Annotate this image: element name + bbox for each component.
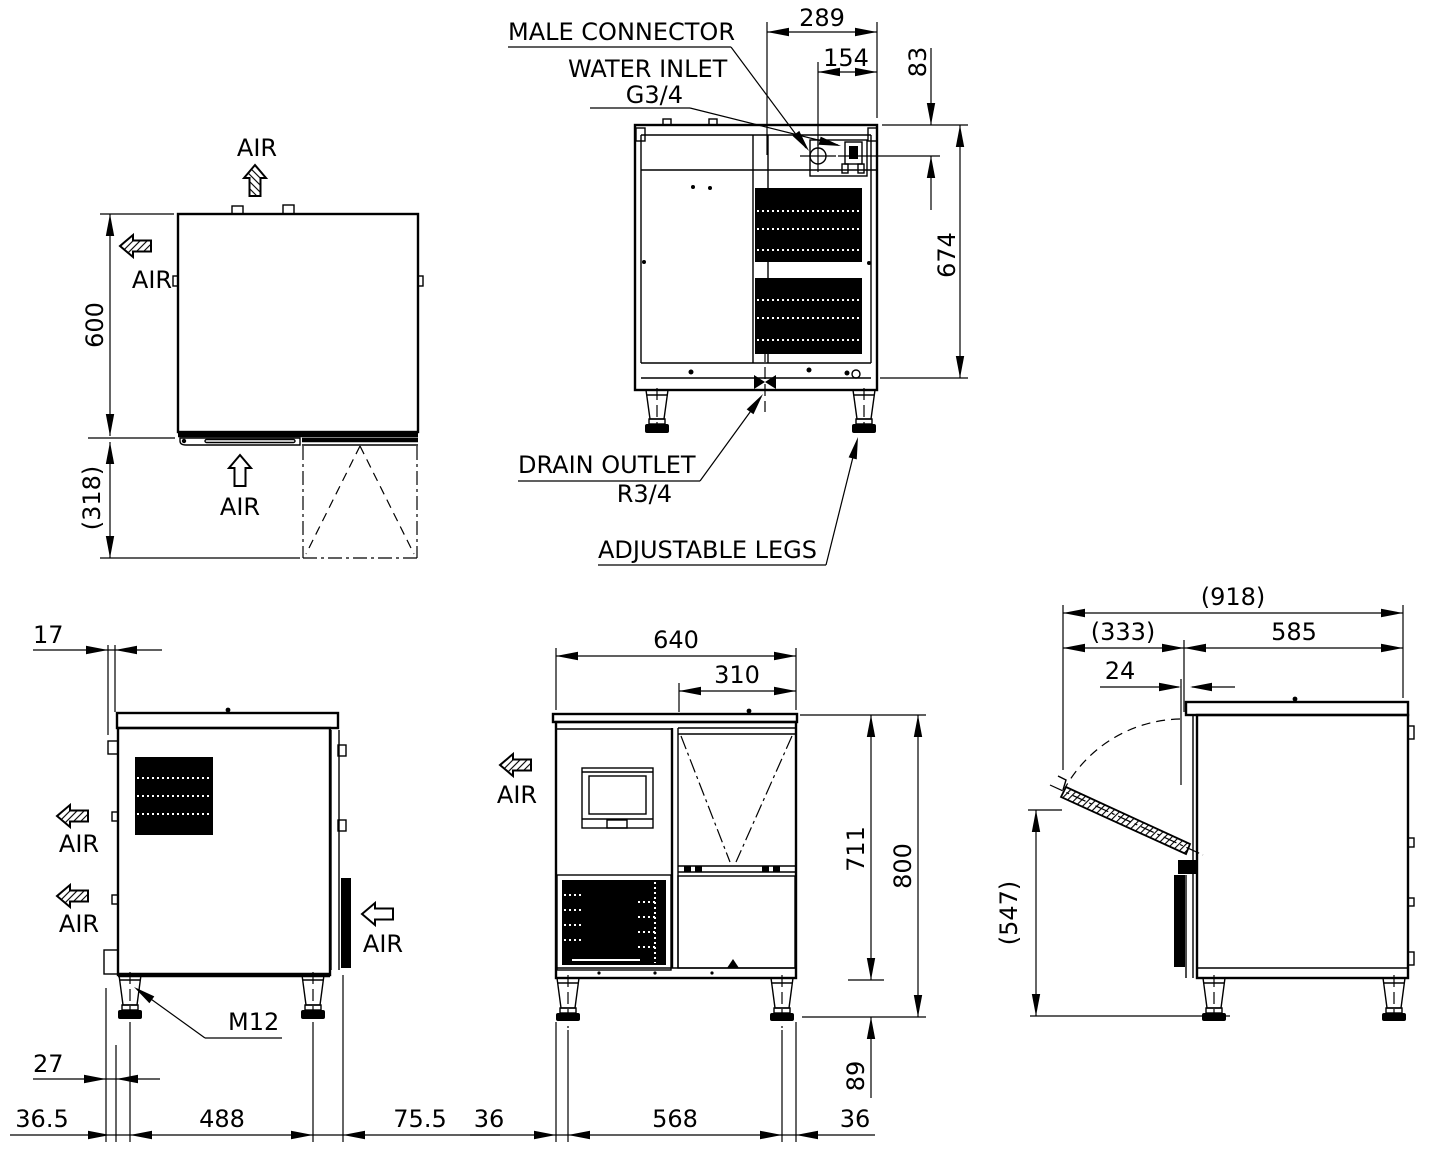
dimension-318: (318): [78, 442, 300, 558]
adjustable-leg: [645, 388, 669, 433]
condenser-grille: [755, 278, 862, 354]
air-in-arrow-icon: [362, 903, 393, 925]
dim-36-5: 36.5: [15, 1105, 68, 1133]
m12-label: M12: [228, 1008, 279, 1036]
base-rail: [641, 363, 871, 378]
ice-maker-dimension-drawing: 600 (318) AIR AIR AIR: [0, 0, 1433, 1159]
dimension-bottom-chain: 36.5 488 75.5: [10, 975, 500, 1142]
top-view: 600 (318) AIR AIR AIR: [78, 134, 423, 558]
callout-drain-outlet: DRAIN OUTLET R3/4: [518, 392, 766, 508]
left-side-view: AIR AIR AIR M12 17 27: [10, 621, 500, 1142]
adjustable-leg: [852, 388, 876, 433]
dim-75-5: 75.5: [393, 1105, 446, 1133]
top-cap: [1186, 702, 1408, 715]
dimension-310: 310: [679, 661, 796, 712]
dim-640: 640: [653, 626, 699, 654]
air-out-arrow-icon: [500, 754, 531, 776]
dim-488: 488: [199, 1105, 245, 1133]
adjustable-leg: [301, 972, 325, 1020]
dim-83: 83: [904, 47, 932, 78]
dim-36-right: 36: [840, 1105, 871, 1133]
rear-view: 289 154 83 674 MALE CONNECTOR: [508, 4, 968, 565]
dimension-674: 674: [880, 125, 968, 378]
dim-154: 154: [823, 44, 869, 72]
air-label: AIR: [220, 493, 260, 521]
water-inlet-thread-label: G3/4: [626, 81, 683, 109]
callout-m12: M12: [132, 984, 282, 1038]
callout-water-inlet: WATER INLET G3/4: [568, 55, 842, 150]
air-out-arrow-icon: [244, 165, 266, 196]
water-inlet-label: WATER INLET: [568, 55, 728, 83]
air-label: AIR: [237, 134, 277, 162]
air-out-arrow-icon: [120, 235, 151, 257]
condenser-grille: [755, 188, 862, 262]
front-vent-grille: [557, 875, 671, 970]
dimension-289: 289: [767, 4, 877, 155]
door-panel-section: [1061, 787, 1190, 854]
air-label: AIR: [59, 830, 99, 858]
dim-310: 310: [714, 661, 760, 689]
dim-711: 711: [842, 826, 870, 872]
adjustable-leg: [118, 972, 142, 1020]
dim-600: 600: [81, 302, 109, 348]
display-window: [582, 768, 653, 828]
right-view-body: [1197, 715, 1408, 978]
air-label: AIR: [132, 266, 172, 294]
door-swing-arc: [1065, 719, 1180, 788]
front-view: AIR 640 310 711: [470, 626, 926, 1142]
dimension-24: 24: [1100, 657, 1235, 785]
front-grille-edge: [1174, 875, 1185, 967]
dimension-640: 640: [556, 626, 796, 710]
dimension-89: 89: [842, 1017, 875, 1098]
adjustable-leg: [770, 975, 794, 1028]
top-cap: [117, 713, 338, 728]
air-out-arrow-icon: [57, 885, 88, 907]
dimension-17: 17: [33, 621, 162, 735]
dim-36-left: 36: [474, 1105, 505, 1133]
air-out-arrow-icon: [57, 805, 88, 827]
door-hinge: [1178, 860, 1197, 874]
air-label: AIR: [497, 781, 537, 809]
bin-door: [678, 736, 795, 968]
dim-89: 89: [842, 1061, 870, 1092]
drain-thread-label: R3/4: [617, 480, 672, 508]
dim-568: 568: [652, 1105, 698, 1133]
right-side-view: (918) (333) 585 24 (547): [995, 583, 1414, 1022]
technical-drawing-sheet: 600 (318) AIR AIR AIR: [0, 0, 1433, 1159]
dim-24: 24: [1105, 657, 1136, 685]
adjustable-leg: [556, 975, 580, 1028]
dim-800: 800: [889, 843, 917, 889]
air-label: AIR: [59, 910, 99, 938]
adjustable-leg: [1382, 975, 1406, 1022]
dim-918: (918): [1201, 583, 1266, 611]
top-cap: [553, 714, 797, 722]
open-door: [1050, 719, 1203, 874]
dim-547: (547): [995, 881, 1023, 946]
intake-slot: [205, 440, 295, 443]
rear-fitting-tab: [283, 205, 294, 214]
drain-outlet-label: DRAIN OUTLET: [518, 451, 696, 479]
air-label: AIR: [363, 930, 403, 958]
top-view-body: [178, 214, 418, 432]
front-door-edge: [331, 730, 351, 970]
dim-333: (333): [1091, 618, 1156, 646]
bin-front-panel: [678, 876, 795, 968]
air-in-arrow-icon: [229, 455, 251, 486]
dimension-bottom-chain: 36 568 36: [470, 1022, 875, 1142]
door-swing-projection: [303, 446, 417, 558]
dim-674: 674: [933, 232, 961, 278]
adjustable-leg: [1202, 975, 1226, 1022]
dim-289: 289: [799, 4, 845, 32]
male-connector-label: MALE CONNECTOR: [508, 18, 735, 46]
side-vent-grille: [135, 757, 213, 835]
dimension-547: (547): [995, 810, 1062, 1016]
dim-585: 585: [1271, 618, 1317, 646]
dim-27: 27: [33, 1050, 64, 1078]
adjustable-legs-label: ADJUSTABLE LEGS: [598, 536, 817, 564]
dim-17: 17: [33, 621, 64, 649]
dim-318: (318): [78, 466, 106, 531]
